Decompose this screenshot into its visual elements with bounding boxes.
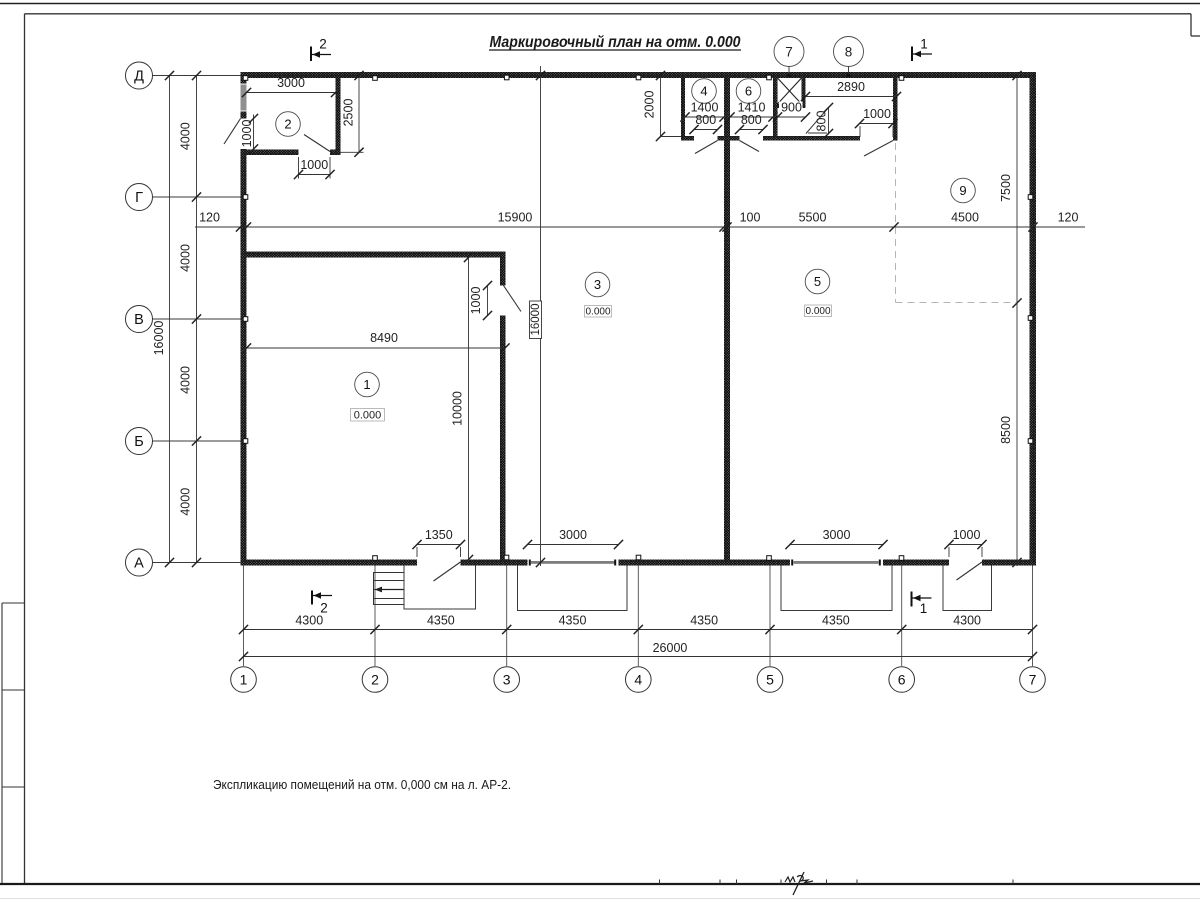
svg-text:2890: 2890	[837, 80, 865, 94]
svg-text:1000: 1000	[953, 528, 981, 542]
svg-text:1: 1	[920, 601, 928, 616]
svg-text:3000: 3000	[559, 528, 587, 542]
svg-text:120: 120	[199, 211, 220, 225]
svg-text:4350: 4350	[690, 614, 718, 628]
svg-text:Г: Г	[135, 190, 143, 206]
svg-text:Д: Д	[134, 69, 144, 85]
svg-text:26000: 26000	[653, 641, 688, 655]
svg-text:1000: 1000	[240, 120, 254, 148]
svg-text:1000: 1000	[469, 287, 483, 315]
svg-text:900: 900	[781, 101, 802, 115]
svg-text:1: 1	[363, 377, 370, 392]
svg-text:5: 5	[766, 671, 774, 687]
svg-text:Б: Б	[134, 434, 144, 450]
svg-text:2: 2	[371, 671, 379, 687]
svg-text:6: 6	[745, 84, 752, 99]
svg-text:4350: 4350	[559, 614, 587, 628]
svg-text:2: 2	[320, 601, 328, 616]
svg-text:4500: 4500	[951, 211, 979, 225]
svg-text:3: 3	[594, 277, 601, 292]
svg-text:1: 1	[240, 671, 248, 687]
svg-text:3000: 3000	[823, 528, 851, 542]
svg-text:Экспликацию помещений на отм.: Экспликацию помещений на отм. 0,000 см н…	[213, 777, 511, 792]
svg-text:4350: 4350	[427, 614, 455, 628]
svg-text:А: А	[134, 556, 144, 572]
svg-text:0.000: 0.000	[585, 306, 610, 317]
svg-text:3000: 3000	[277, 76, 305, 90]
svg-text:15900: 15900	[498, 211, 533, 225]
svg-text:В: В	[134, 312, 144, 328]
svg-text:1000: 1000	[863, 107, 891, 121]
svg-text:5: 5	[814, 274, 821, 289]
svg-text:800: 800	[815, 111, 829, 132]
svg-text:4: 4	[700, 84, 707, 99]
svg-text:1350: 1350	[425, 528, 453, 542]
svg-text:4300: 4300	[295, 614, 323, 628]
svg-text:4000: 4000	[179, 244, 193, 272]
svg-text:0.000: 0.000	[354, 409, 382, 421]
svg-text:16000: 16000	[530, 304, 542, 336]
svg-text:7: 7	[785, 45, 793, 60]
svg-text:2: 2	[319, 37, 327, 52]
svg-text:800: 800	[695, 113, 716, 127]
svg-text:6: 6	[898, 671, 906, 687]
svg-text:7500: 7500	[999, 174, 1013, 202]
svg-text:3: 3	[503, 671, 511, 687]
svg-text:4000: 4000	[179, 366, 193, 394]
svg-text:800: 800	[741, 113, 762, 127]
svg-text:100: 100	[740, 211, 761, 225]
svg-text:4000: 4000	[179, 122, 193, 150]
svg-text:4: 4	[634, 671, 642, 687]
svg-text:4000: 4000	[179, 488, 193, 516]
svg-text:10000: 10000	[451, 391, 465, 426]
svg-text:120: 120	[1058, 211, 1079, 225]
svg-text:2: 2	[284, 117, 291, 132]
svg-text:9: 9	[959, 183, 966, 198]
svg-text:1000: 1000	[300, 158, 328, 172]
svg-text:2000: 2000	[643, 91, 657, 119]
svg-text:16000: 16000	[152, 321, 166, 356]
svg-text:8490: 8490	[370, 331, 398, 345]
svg-text:5500: 5500	[799, 211, 827, 225]
svg-text:2500: 2500	[342, 99, 356, 127]
svg-text:4300: 4300	[953, 614, 981, 628]
svg-text:Маркировочный план на отм. 0.0: Маркировочный план на отм. 0.000	[490, 34, 741, 51]
svg-text:0.000: 0.000	[805, 306, 830, 317]
svg-text:8500: 8500	[999, 416, 1013, 444]
svg-text:4350: 4350	[822, 614, 850, 628]
svg-text:8: 8	[845, 45, 853, 60]
svg-text:7: 7	[1029, 671, 1037, 687]
svg-text:1: 1	[920, 37, 928, 52]
